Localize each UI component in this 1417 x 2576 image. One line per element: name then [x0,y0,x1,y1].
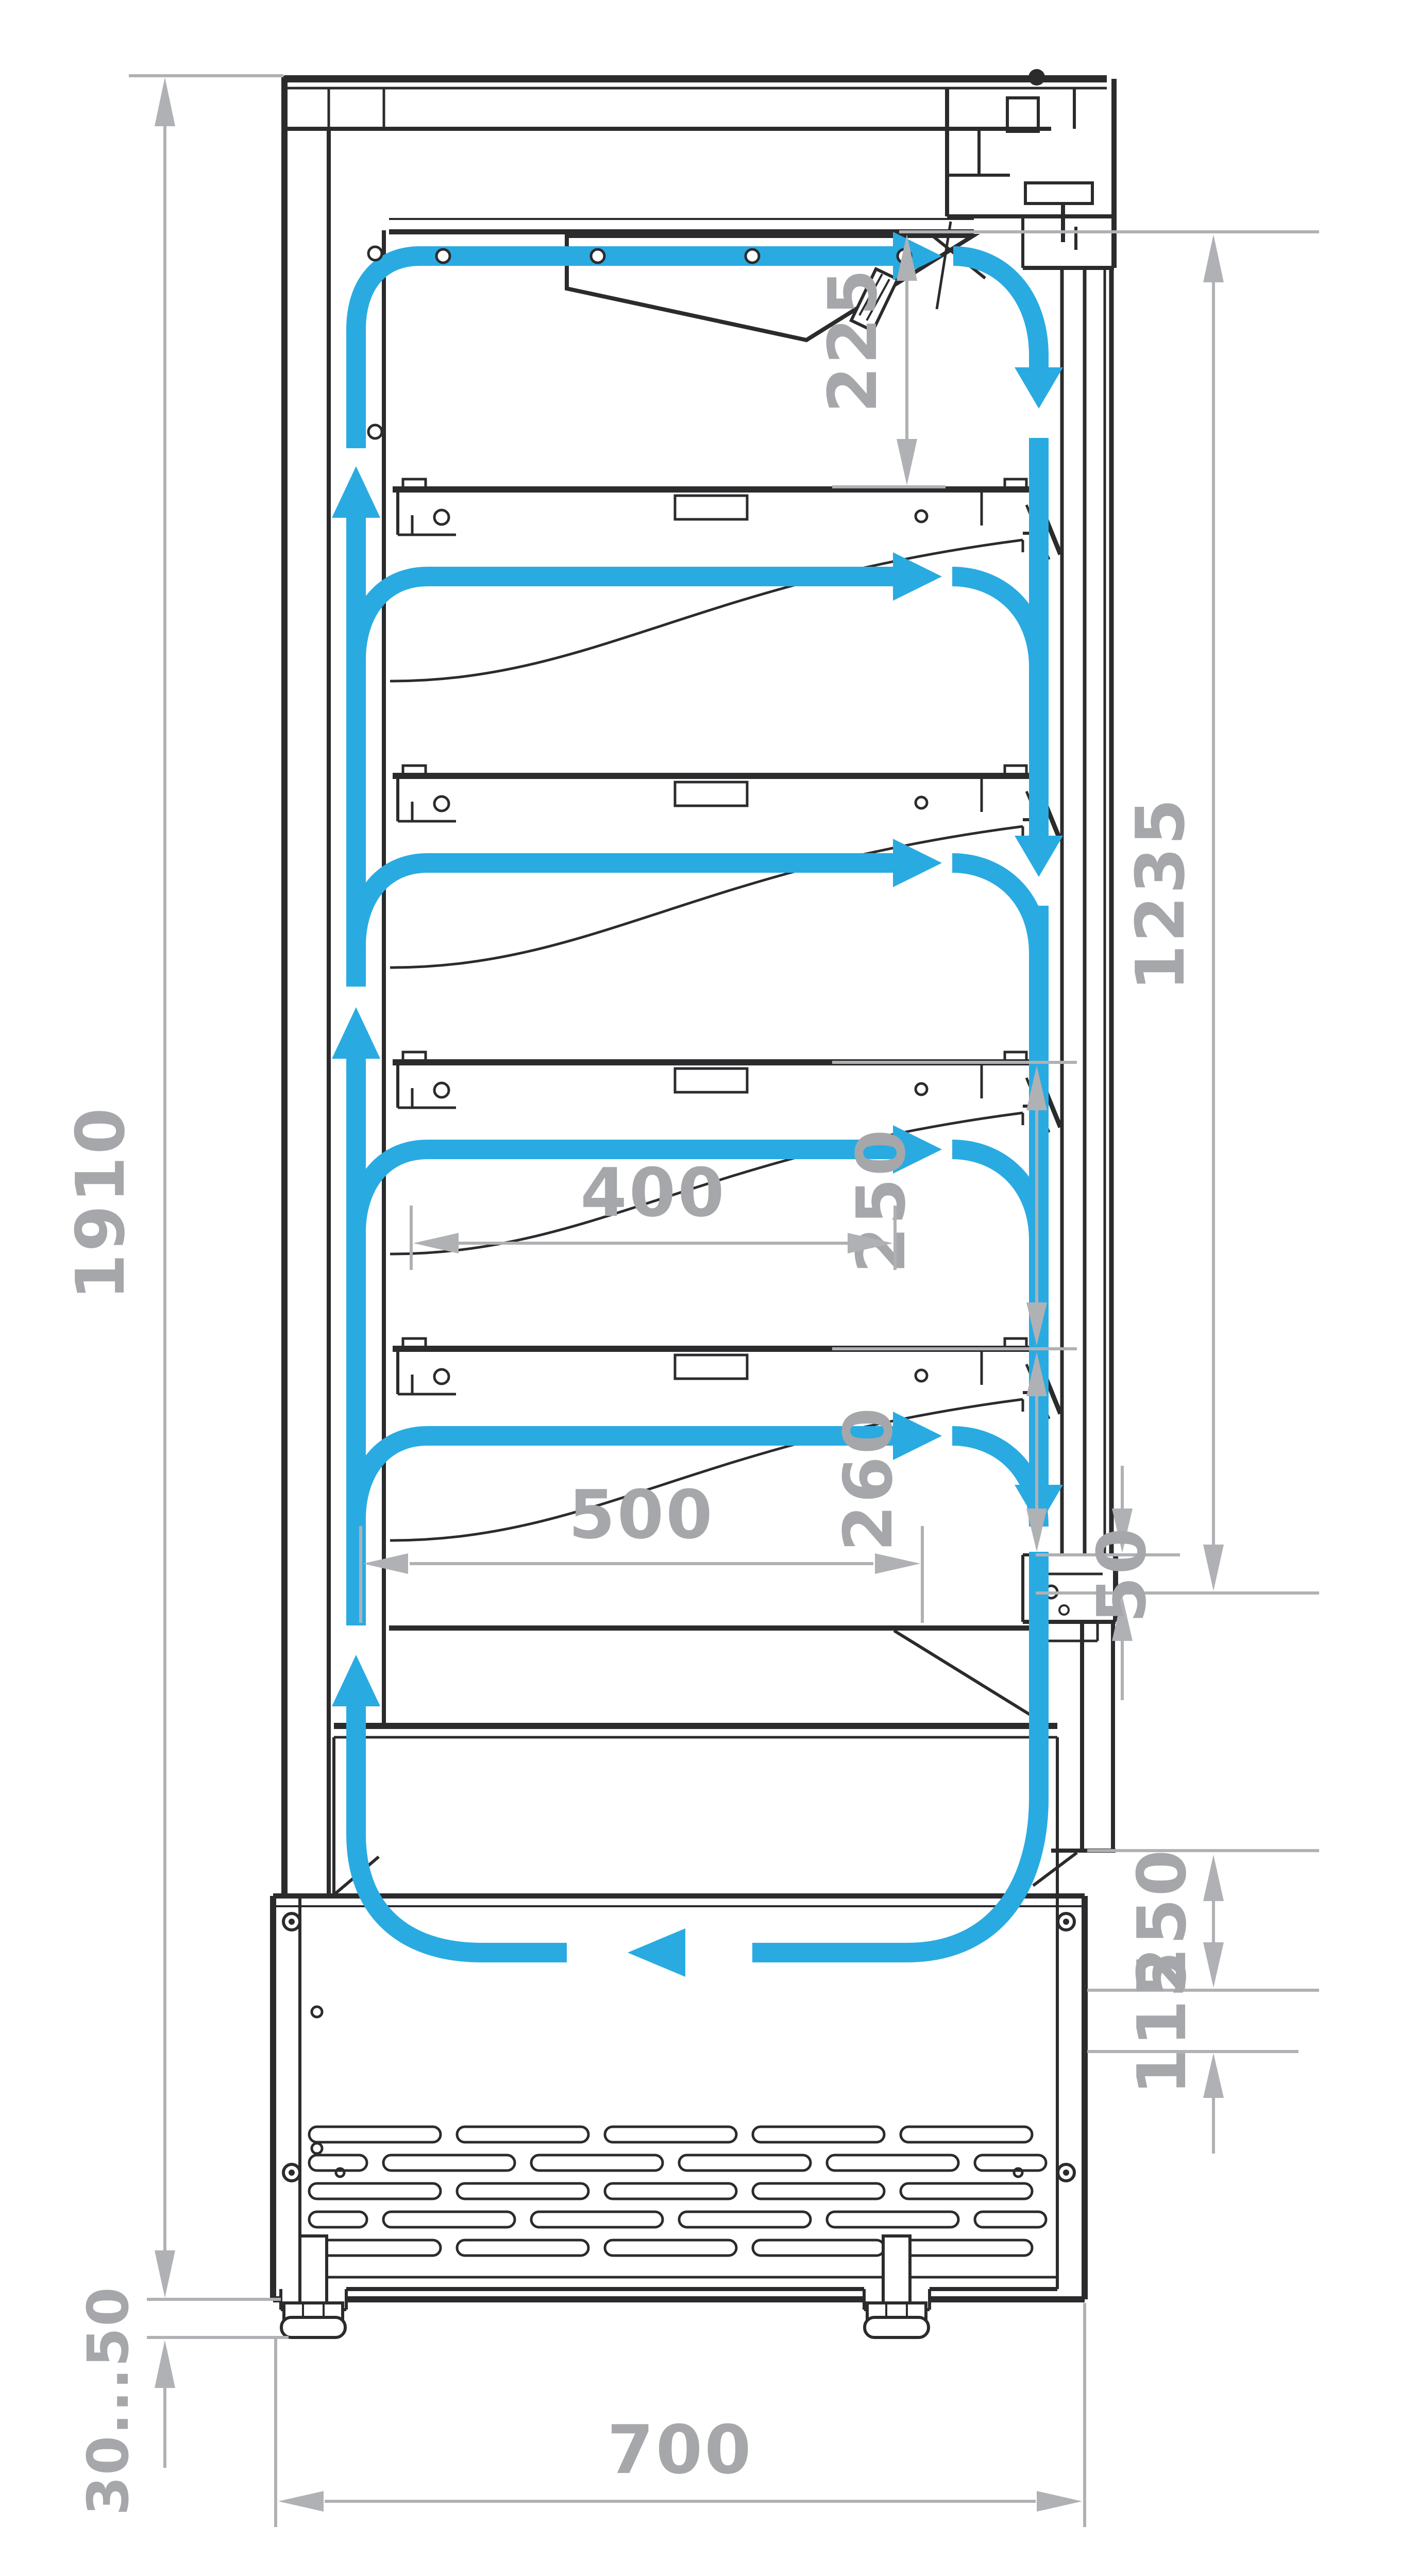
top-cap [284,76,1107,129]
dim-sill-gap: 50 [1036,1466,1180,1700]
dim-sill-gap-label: 50 [1083,1526,1161,1623]
dim-shelf-pitch-lower-label: 260 [829,1405,907,1551]
dim-base-grille-label: 115 [1123,1949,1201,2095]
drawing-canvas: 1910 30...50 225 1235 [0,0,1417,2576]
dim-base-upper: 250 [1087,1848,1319,1993]
dim-top-clearance-label: 225 [814,267,892,413]
ventilation-grille [309,2127,1046,2256]
glass-door [1062,268,1111,1555]
dim-foot-height-label: 30...50 [75,2286,141,2516]
base-screw [1058,2164,1074,2181]
left-wall [284,76,384,1896]
dim-overall-height: 1910 [61,76,283,2299]
base-screw [283,2164,300,2181]
dim-base-grille: 115 [1087,1949,1298,2154]
dim-door-height: 1235 [1036,234,1319,1593]
dimensions: 1910 30...50 225 1235 [61,76,1319,2527]
dim-foot-height: 30...50 [75,2286,289,2516]
base-screw [1058,1913,1074,1930]
dim-door-height-label: 1235 [1121,796,1200,991]
base-screw [283,1913,300,1930]
dim-base-depth: 700 [276,2303,1085,2527]
dim-overall-height-label: 1910 [61,1106,140,1300]
leveling-foot-front [281,2236,345,2337]
dim-deck-depth-label: 500 [568,1476,714,1554]
dim-base-depth-label: 700 [607,2411,753,2489]
leveling-foot-back [865,2236,929,2337]
dim-top-clearance: 225 [814,232,1319,487]
deck [334,1628,1077,1896]
front-lower-panel [1051,1622,1116,1896]
airflow-arrows [332,232,1063,1977]
dim-shelf-depth-label: 400 [580,1154,726,1232]
hinge-knob [1028,69,1045,86]
dim-shelf-depth: 400 [411,1154,895,1270]
